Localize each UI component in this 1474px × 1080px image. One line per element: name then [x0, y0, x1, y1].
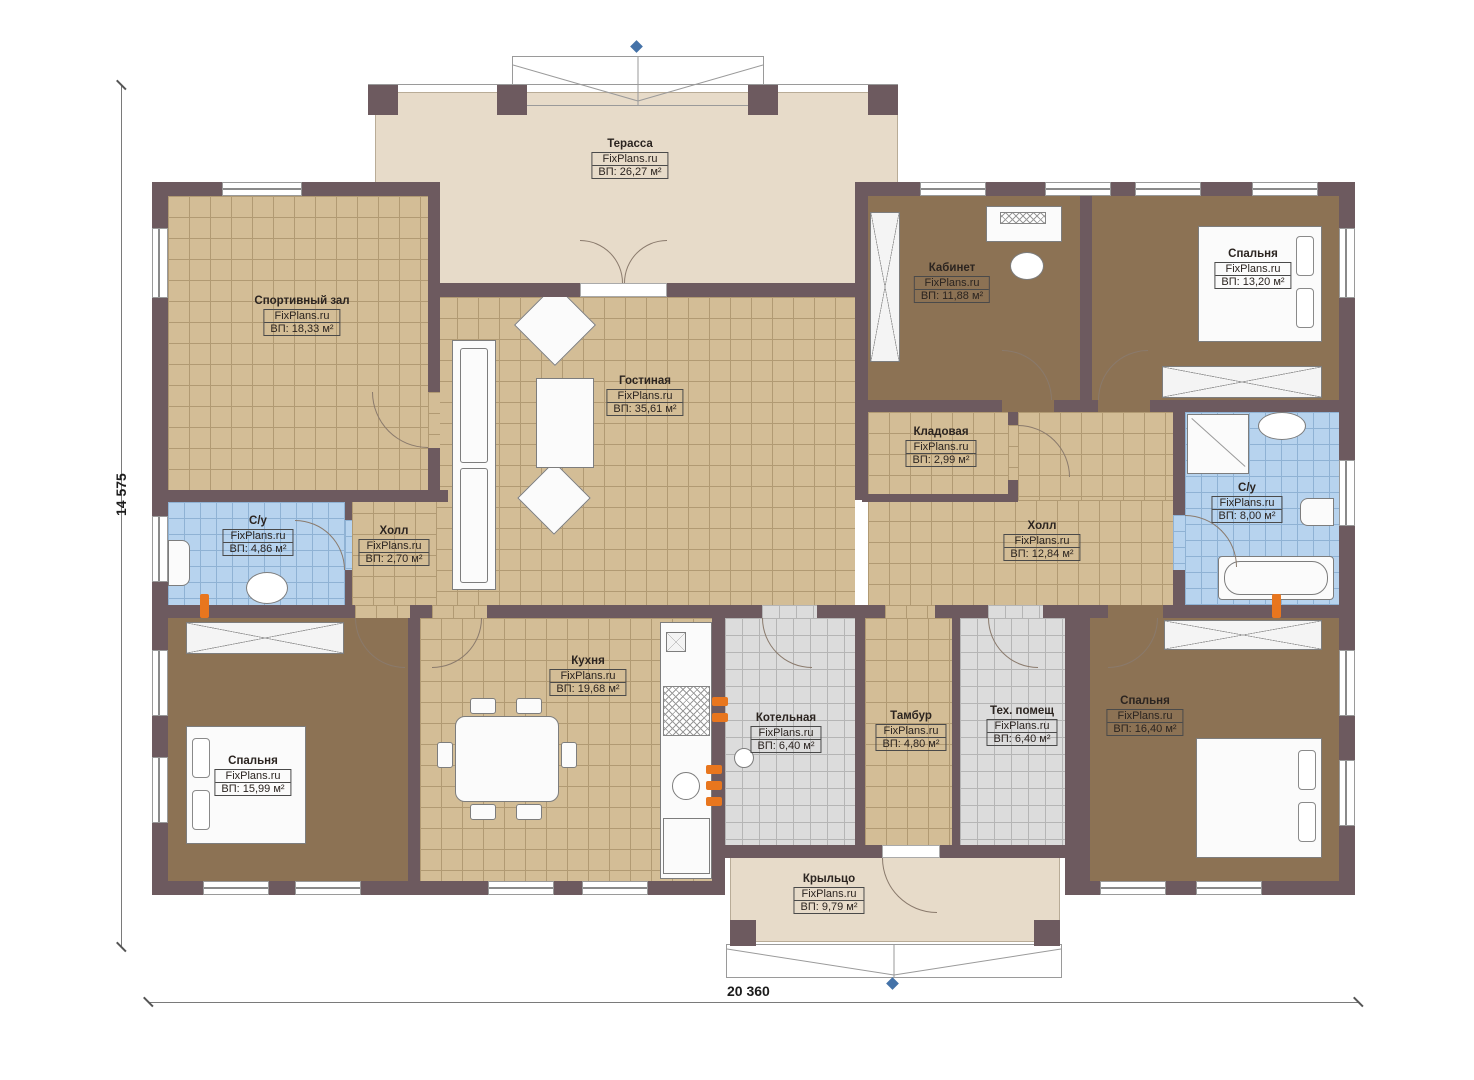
radiator-icon	[706, 797, 722, 806]
room-area: ВП: 16,40 м²	[1107, 723, 1182, 735]
window	[152, 650, 168, 716]
chair	[470, 804, 496, 820]
site-link: FixPlans.ru	[550, 670, 625, 683]
wall-boiler-vestibule-divider	[855, 618, 865, 845]
window	[222, 182, 302, 196]
porch-steps-v-lines	[727, 945, 1061, 977]
site-link: FixPlans.ru	[264, 310, 339, 323]
room-label-terrace: Терасса FixPlans.ruВП: 26,27 м²	[591, 138, 668, 180]
room-label-vestibule: Тамбур FixPlans.ruВП: 4,80 м²	[875, 710, 946, 752]
room-name: Крыльцо	[793, 873, 864, 885]
pantry-door-opening	[1008, 425, 1018, 480]
chair	[437, 742, 453, 768]
floor-gym	[168, 196, 428, 492]
axis-marker-bottom-icon	[886, 977, 899, 990]
wall-tech-bedroom-divider	[1065, 618, 1090, 881]
radiator-icon	[706, 765, 722, 774]
porch-steps-outline	[726, 944, 1062, 978]
wall-bedroom-kitchen-divider	[408, 618, 420, 881]
office-door-opening	[1002, 400, 1054, 412]
window	[295, 881, 361, 895]
room-name: Кабинет	[914, 262, 990, 274]
window	[582, 881, 648, 895]
window	[152, 516, 168, 582]
window	[203, 881, 269, 895]
room-area: ВП: 12,84 м²	[1004, 548, 1079, 560]
room-label-living-room: Гостиная FixPlans.ruВП: 35,61 м²	[606, 375, 683, 417]
chair	[516, 804, 542, 820]
wall-gym-bottom	[152, 490, 448, 502]
toilet-icon	[1300, 498, 1334, 526]
room-area: ВП: 6,40 м²	[987, 733, 1056, 745]
room-name: Кладовая	[905, 426, 976, 438]
window	[1045, 182, 1111, 196]
pillow	[1298, 750, 1316, 790]
kitchen-door-opening	[432, 605, 487, 618]
kitchen-sink-icon	[672, 772, 700, 800]
wall-pantry-bottom	[862, 494, 1018, 502]
boiler-door-opening	[762, 605, 817, 618]
porch-column	[730, 920, 756, 946]
window	[1339, 460, 1355, 526]
radiator-icon	[712, 713, 728, 722]
site-link: FixPlans.ru	[607, 390, 682, 403]
wall-corridor-bottom	[152, 605, 1355, 618]
room-area: ВП: 11,88 м²	[915, 290, 989, 302]
room-name: Спальня	[1106, 695, 1183, 707]
room-label-gym: Спортивный зал FixPlans.ruВП: 18,33 м²	[254, 295, 349, 337]
tech-door-opening	[988, 605, 1043, 618]
room-name: Спортивный зал	[254, 295, 349, 307]
bedroom-door-opening	[355, 605, 410, 618]
site-link: FixPlans.ru	[1215, 263, 1290, 276]
window	[1339, 228, 1355, 298]
sofa-cushion	[460, 348, 488, 463]
roof-gable-outline	[512, 56, 764, 106]
site-link: FixPlans.ru	[876, 725, 945, 738]
room-area: ВП: 2,70 м²	[359, 553, 428, 565]
room-area: ВП: 13,20 м²	[1215, 276, 1290, 288]
radiator-icon	[200, 594, 209, 618]
site-link: FixPlans.ru	[987, 720, 1056, 733]
bedroom-door-opening	[1098, 400, 1150, 412]
room-area: ВП: 2,99 м²	[906, 454, 975, 466]
wardrobe	[186, 622, 344, 654]
wardrobe	[1164, 620, 1322, 650]
room-name: Спальня	[1214, 248, 1291, 260]
site-link: FixPlans.ru	[1212, 497, 1281, 510]
site-link: FixPlans.ru	[223, 530, 292, 543]
room-name: Гостиная	[606, 375, 683, 387]
chair	[516, 698, 542, 714]
room-label-pantry: Кладовая FixPlans.ruВП: 2,99 м²	[905, 426, 976, 468]
room-label-tech-room: Тех. помещ FixPlans.ruВП: 6,40 м²	[986, 705, 1057, 747]
room-label-porch: Крыльцо FixPlans.ruВП: 9,79 м²	[793, 873, 864, 915]
pillow	[1298, 802, 1316, 842]
window	[920, 182, 986, 196]
room-area: ВП: 4,86 м²	[223, 543, 292, 555]
room-area: ВП: 35,61 м²	[607, 403, 682, 415]
room-name: Терасса	[591, 138, 668, 150]
pillow	[1296, 236, 1314, 276]
room-name: Тех. помещ	[986, 705, 1057, 717]
dining-table	[455, 716, 559, 802]
dimension-height-label: 14 575	[113, 473, 129, 516]
room-area: ВП: 15,99 м²	[215, 783, 290, 795]
dimension-line-horizontal	[148, 1002, 1358, 1003]
floor-living-room	[436, 297, 855, 605]
wall-office-left	[855, 196, 868, 500]
room-name: С/у	[1211, 482, 1282, 494]
toilet-icon	[246, 572, 288, 604]
window	[1339, 650, 1355, 716]
room-area: ВП: 18,33 м²	[264, 323, 339, 335]
terrace-column	[368, 85, 398, 115]
pillow	[1296, 288, 1314, 328]
room-label-bedroom-top-right: Спальня FixPlans.ruВП: 13,20 м²	[1214, 248, 1291, 290]
pillow	[192, 738, 210, 778]
desk-equipment	[1000, 212, 1046, 224]
entrance-door-opening	[882, 845, 940, 858]
axis-marker-top-icon	[630, 40, 643, 53]
wall-kitchen-boiler-divider	[712, 618, 725, 881]
site-link: FixPlans.ru	[906, 441, 975, 454]
room-area: ВП: 8,00 м²	[1212, 510, 1281, 522]
room-name: С/у	[222, 515, 293, 527]
vestibule-door-opening	[885, 605, 935, 618]
room-name: Холл	[358, 525, 429, 537]
terrace-column	[868, 85, 898, 115]
room-area: ВП: 9,79 м²	[794, 901, 863, 913]
bathtub-inner	[1224, 561, 1328, 595]
room-label-wc-left: С/у FixPlans.ruВП: 4,86 м²	[222, 515, 293, 557]
window	[1339, 760, 1355, 826]
radiator-icon	[1272, 594, 1281, 618]
wc-right-door-opening	[1173, 515, 1185, 570]
window	[152, 228, 168, 298]
dimension-line-vertical	[121, 85, 122, 948]
site-link: FixPlans.ru	[1004, 535, 1079, 548]
window	[1100, 881, 1166, 895]
roof-gable-v-lines	[513, 57, 763, 105]
floor-plan-canvas: Терасса FixPlans.ruВП: 26,27 м² Спортивн…	[0, 0, 1474, 1080]
dimension-width-label: 20 360	[727, 983, 770, 999]
site-link: FixPlans.ru	[1107, 710, 1182, 723]
terrace-column	[497, 85, 527, 115]
office-chair	[1010, 252, 1044, 280]
chair	[561, 742, 577, 768]
terrace-column	[748, 85, 778, 115]
gym-door-opening	[428, 392, 440, 448]
wardrobe	[1162, 366, 1322, 398]
wall-office-bedroom-divider	[1080, 196, 1092, 400]
room-label-kitchen: Кухня FixPlans.ruВП: 19,68 м²	[549, 655, 626, 697]
room-label-hall-small: Холл FixPlans.ruВП: 2,70 м²	[358, 525, 429, 567]
wc-left-door-opening	[345, 520, 352, 570]
room-label-wc-right: С/у FixPlans.ruВП: 8,00 м²	[1211, 482, 1282, 524]
terrace-door-opening	[580, 283, 667, 297]
site-link: FixPlans.ru	[359, 540, 428, 553]
room-area: ВП: 6,40 м²	[751, 740, 820, 752]
room-area: ВП: 4,80 м²	[876, 738, 945, 750]
fridge-icon	[663, 818, 710, 874]
room-label-boiler-room: Котельная FixPlans.ruВП: 6,40 м²	[750, 712, 821, 754]
sink-icon	[168, 540, 190, 586]
radiator-icon	[706, 781, 722, 790]
site-link: FixPlans.ru	[592, 153, 667, 166]
room-area: ВП: 26,27 м²	[592, 166, 667, 178]
site-link: FixPlans.ru	[215, 770, 290, 783]
room-name: Тамбур	[875, 710, 946, 722]
window	[1252, 182, 1318, 196]
room-name: Холл	[1003, 520, 1080, 532]
site-link: FixPlans.ru	[915, 277, 989, 290]
wardrobe	[870, 212, 900, 362]
sink-icon	[1258, 412, 1306, 440]
chair	[470, 698, 496, 714]
counter-symbol	[666, 632, 686, 652]
stove-icon	[663, 686, 710, 736]
bedroom-door-opening	[1108, 605, 1163, 618]
wall-vestibule-tech-divider	[952, 618, 960, 845]
window	[1135, 182, 1201, 196]
room-name: Кухня	[549, 655, 626, 667]
room-label-office: Кабинет FixPlans.ruВП: 11,88 м²	[914, 262, 990, 304]
room-name: Спальня	[214, 755, 291, 767]
wall-wc-right-left	[1173, 412, 1185, 605]
porch-column	[1034, 920, 1060, 946]
room-name: Котельная	[750, 712, 821, 724]
window	[152, 757, 168, 823]
sofa-cushion	[460, 468, 488, 583]
room-label-bedroom-bottom-left: Спальня FixPlans.ruВП: 15,99 м²	[214, 755, 291, 797]
site-link: FixPlans.ru	[794, 888, 863, 901]
radiator-icon	[712, 697, 728, 706]
pillow	[192, 790, 210, 830]
room-area: ВП: 19,68 м²	[550, 683, 625, 695]
coffee-table	[536, 378, 594, 468]
room-label-hall: Холл FixPlans.ruВП: 12,84 м²	[1003, 520, 1080, 562]
room-label-bedroom-bottom-right: Спальня FixPlans.ruВП: 16,40 м²	[1106, 695, 1183, 737]
window	[488, 881, 554, 895]
site-link: FixPlans.ru	[751, 727, 820, 740]
window	[1196, 881, 1262, 895]
